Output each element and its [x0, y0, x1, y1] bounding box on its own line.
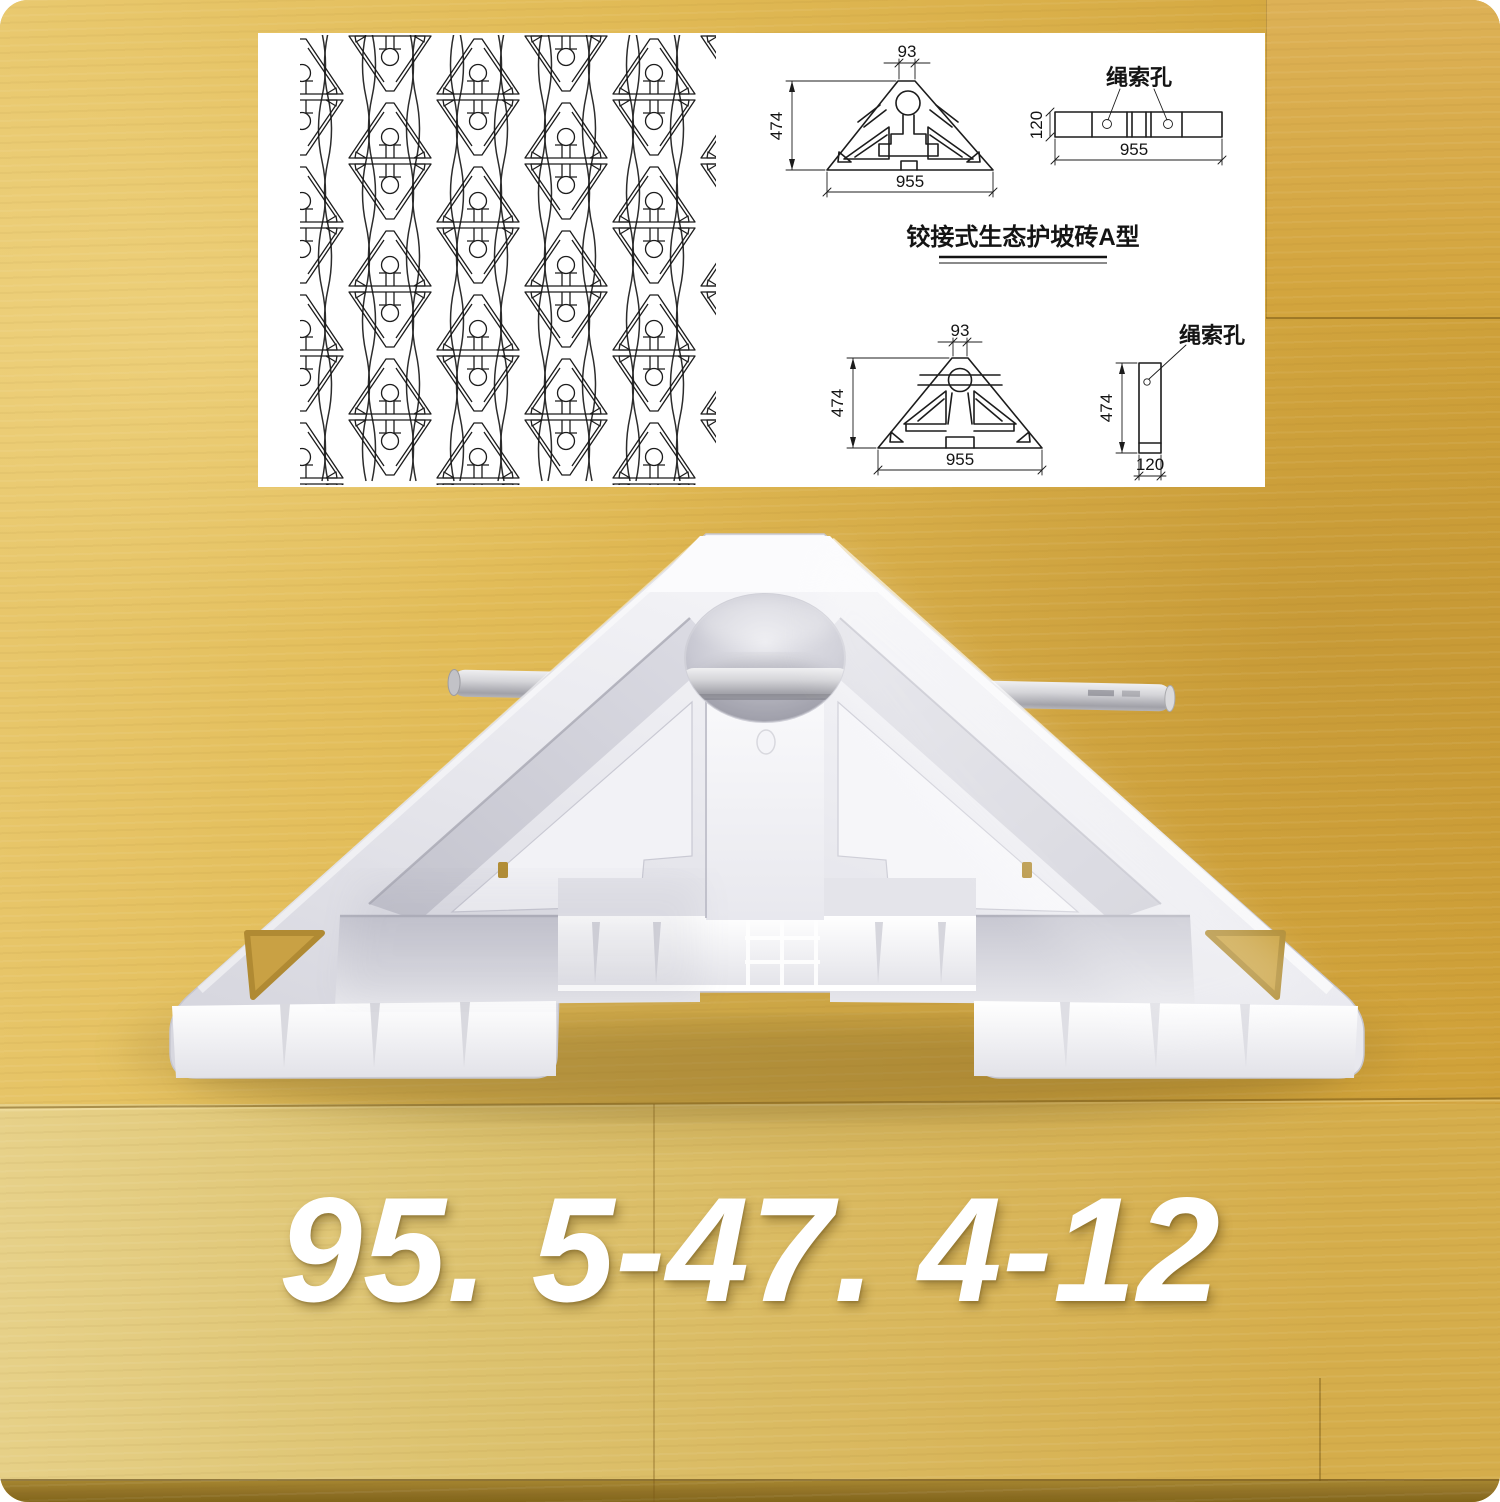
- pipe-right-end: [1165, 685, 1176, 711]
- pipe-print-mark: [1088, 690, 1114, 697]
- pipe-left-end: [448, 669, 461, 695]
- shade-overlay: [340, 880, 700, 1000]
- left-foot-face: [172, 1001, 556, 1078]
- pipe-print-mark: [1122, 690, 1140, 696]
- slot-hole: [498, 862, 508, 878]
- resin-droplet: [757, 730, 775, 754]
- product-image-card: 93 474 955 绳索孔: [0, 0, 1500, 1502]
- pipe-in-recess: [680, 668, 852, 698]
- product-code-text: 95. 5-47. 4-12: [0, 1168, 1500, 1332]
